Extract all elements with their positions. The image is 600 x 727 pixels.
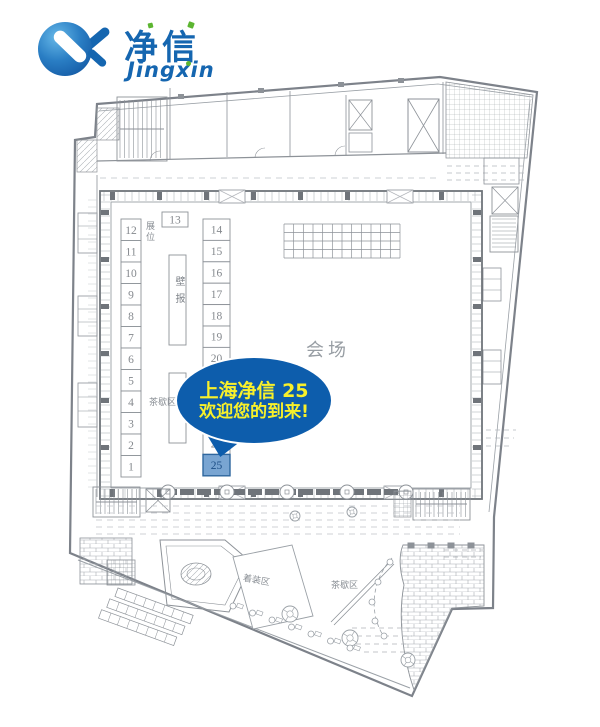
floor-plan-svg: 1211109876543211314151617181920212223242…: [0, 0, 600, 727]
booth-number: 12: [125, 225, 137, 237]
brand-name-en: Jingxin: [127, 58, 215, 82]
booth-number: 10: [125, 268, 137, 280]
booth-number: 16: [211, 268, 223, 280]
booth-number: 3: [128, 418, 134, 430]
booth-number: 15: [211, 246, 223, 258]
main-hall: 1211109876543211314151617181920212223242…: [100, 190, 482, 499]
booth-number: 18: [211, 310, 223, 322]
booth-number: 4: [128, 397, 134, 409]
poster-label: 壁报: [171, 276, 186, 310]
green-accent: [186, 61, 191, 66]
booth-number: 6: [128, 354, 134, 366]
tea-break-outer-label: 茶歇区: [331, 578, 358, 591]
booth-number: 7: [128, 332, 134, 344]
booth-area-label: 展位: [143, 221, 156, 243]
jingxin-logo: 净信 Jingxin: [28, 14, 248, 84]
booth-number: 11: [125, 246, 136, 258]
hall-label: 会场: [306, 336, 350, 362]
booth-number: 17: [211, 289, 223, 301]
speech-bubble: 上海净信 25 欢迎您的到来!: [177, 358, 331, 443]
tea-break-inner-label: 茶歇区: [149, 395, 176, 408]
booth-number: 19: [211, 332, 223, 344]
booth-number: 13: [169, 215, 181, 227]
booth-number: 25: [211, 460, 223, 472]
booth-number: 8: [128, 311, 134, 323]
booth-number: 9: [128, 289, 134, 301]
flyer-canvas: 1211109876543211314151617181920212223242…: [0, 0, 600, 727]
booth-number: 2: [128, 440, 134, 452]
bubble-line1: 上海净信 25: [199, 380, 308, 402]
booth-number: 14: [211, 225, 223, 237]
bubble-line2: 欢迎您的到来!: [199, 402, 309, 422]
booth-number: 5: [128, 375, 134, 387]
booth-number: 1: [128, 461, 134, 473]
